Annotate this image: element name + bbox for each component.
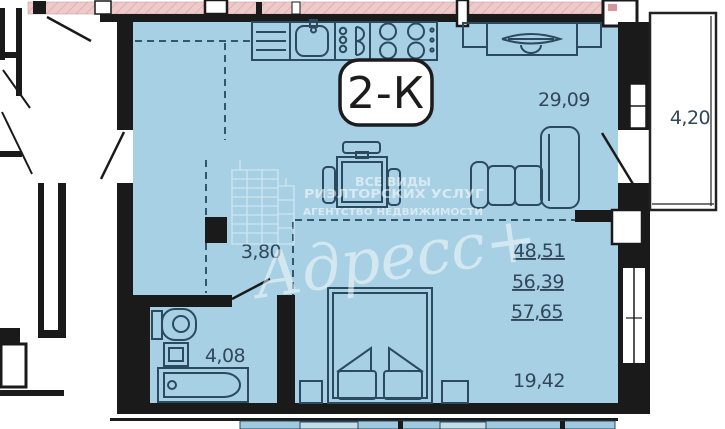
floorplan-svg: 29,09 4,20 3,80 4,08 19,42 48,51 56,39 5… xyxy=(0,0,725,429)
neighbor-unit-bottom xyxy=(110,418,618,429)
wall-bedroom-right xyxy=(618,365,650,414)
total-area-line3: 57,65 xyxy=(511,301,563,323)
bedroom-area-label: 19,42 xyxy=(513,370,565,392)
kitchen-living-area-label: 29,09 xyxy=(538,89,590,111)
wall-balcony-partition xyxy=(618,22,650,82)
wall-left-upper xyxy=(117,14,133,130)
neighbor-walls-left xyxy=(0,8,66,396)
door-leaf-entrance xyxy=(101,132,124,179)
wall-corner-mark xyxy=(608,4,617,11)
wall-bathroom-right xyxy=(277,295,295,403)
wall-pier xyxy=(205,0,227,14)
wall-top xyxy=(100,14,613,22)
wall-left-lower xyxy=(117,183,133,414)
balcony-door-sill xyxy=(612,210,642,244)
balcony-area-label: 4,20 xyxy=(670,107,710,129)
ventilation-shaft xyxy=(205,217,227,243)
bathroom-area-label: 4,08 xyxy=(205,345,245,367)
unit-type-label: 2-К xyxy=(347,68,425,119)
wall-bottom xyxy=(117,403,650,414)
unit-type-badge: 2-К xyxy=(340,60,432,125)
total-area-line1: 48,51 xyxy=(513,240,565,262)
wall-bathroom-top xyxy=(133,295,232,307)
floorplan-image: 29,09 4,20 3,80 4,08 19,42 48,51 56,39 5… xyxy=(0,0,725,429)
total-area-line2: 56,39 xyxy=(512,271,564,293)
hallway-area-label: 3,80 xyxy=(241,241,281,263)
neighbor-unit-top-band xyxy=(28,1,613,14)
wall-bathroom-left xyxy=(133,307,150,403)
door-leaf-corridor xyxy=(47,17,91,41)
